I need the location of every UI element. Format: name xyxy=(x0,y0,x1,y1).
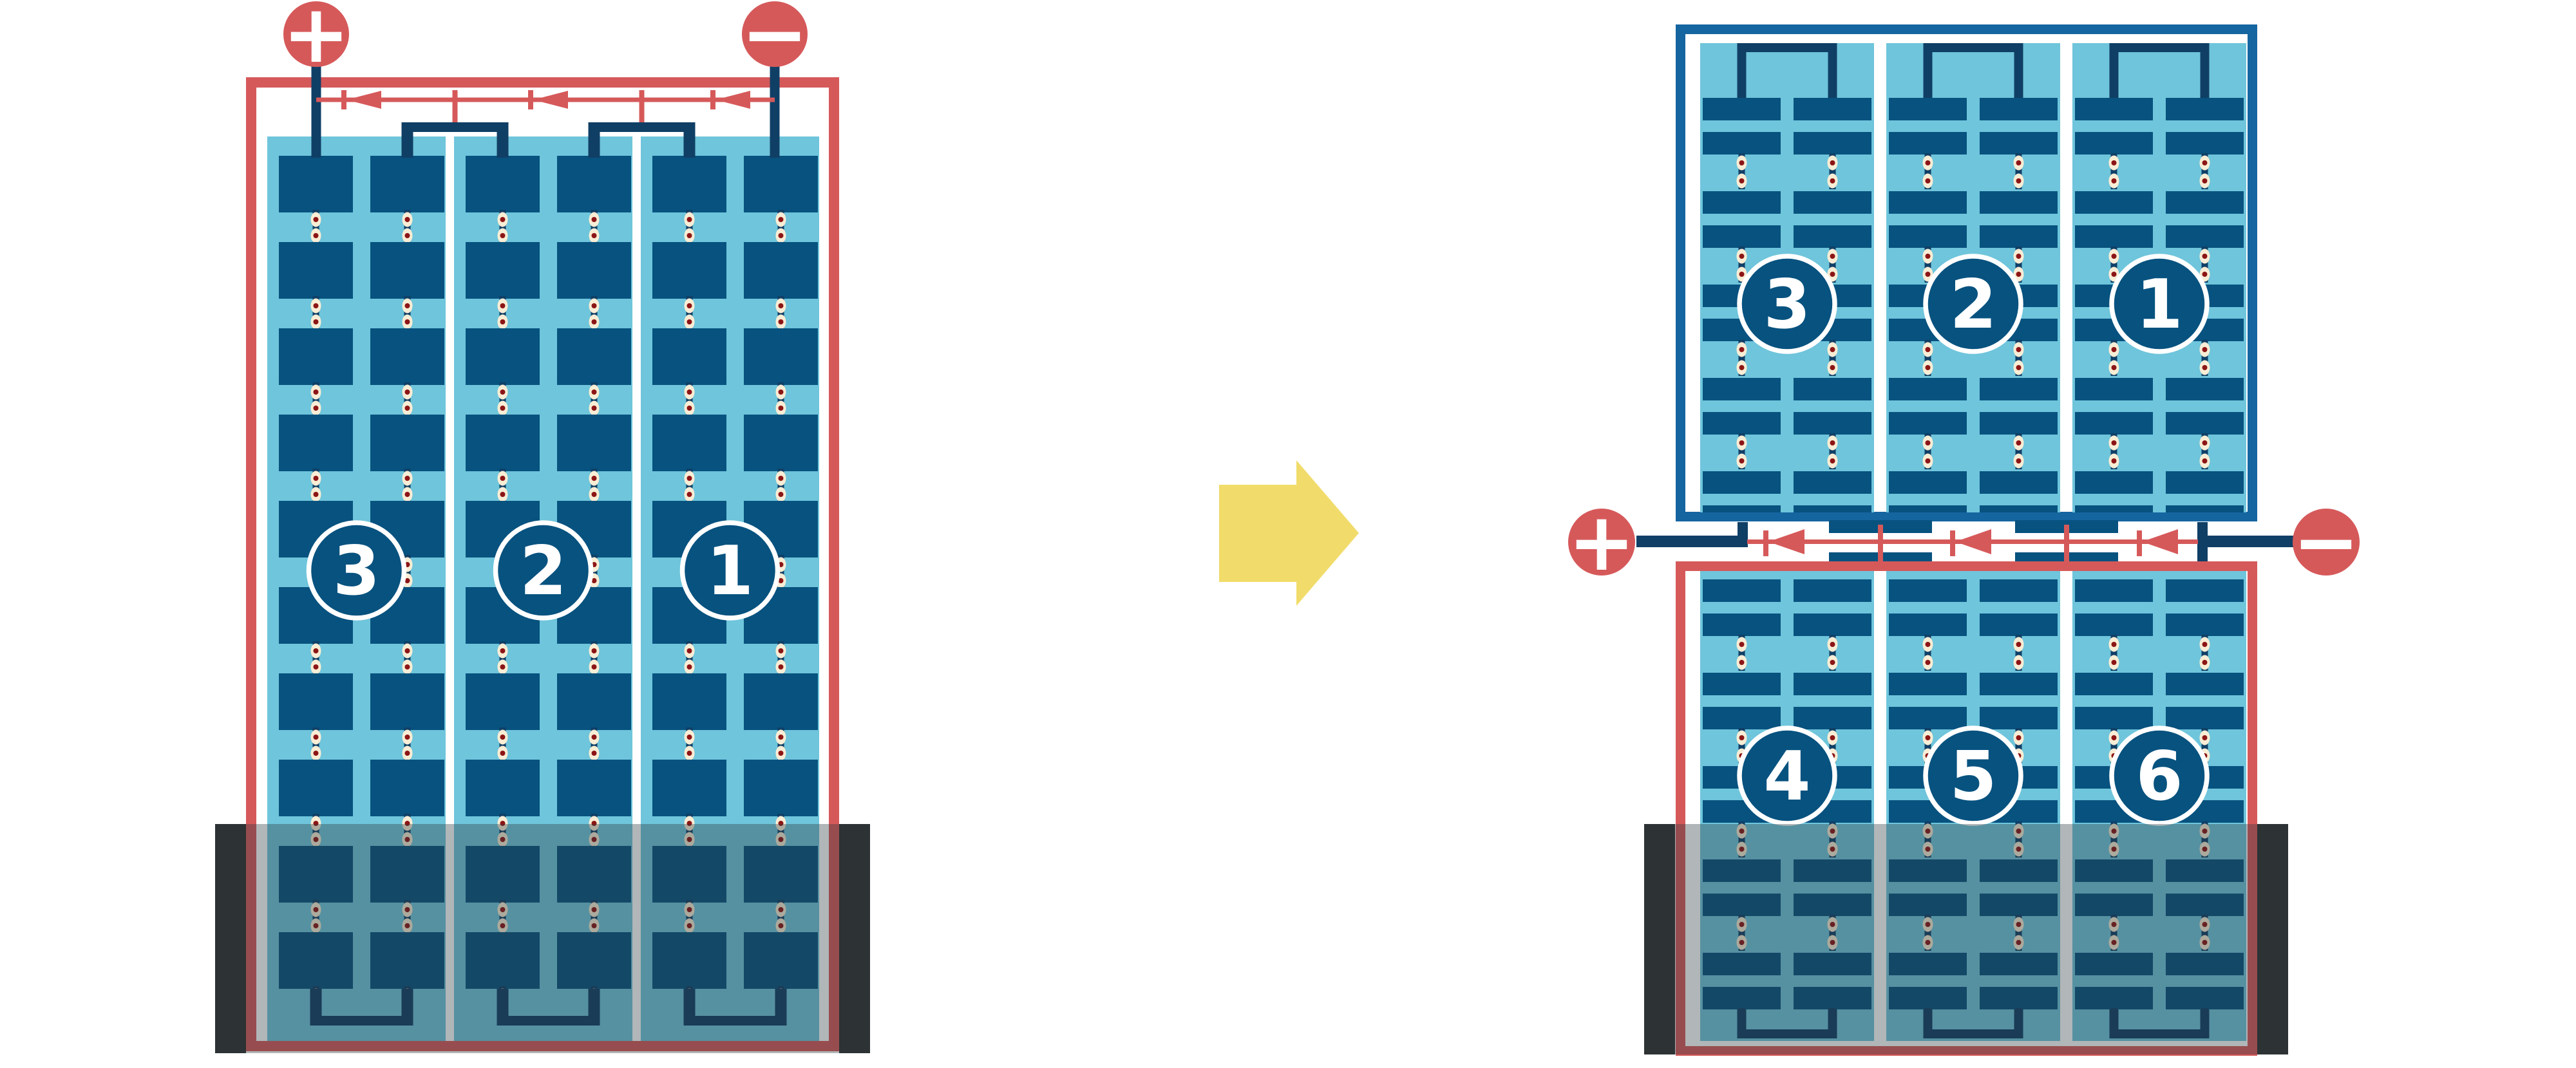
bypass-diode-icon xyxy=(528,90,568,109)
right-arrow-icon xyxy=(1219,460,1359,606)
left-panel: 3 2 1 + − xyxy=(215,0,870,1053)
string-label-badge: 1 xyxy=(683,523,778,618)
positive-terminal-icon: + xyxy=(1568,496,1636,589)
negative-terminal-icon: − xyxy=(741,0,809,81)
positive-terminal-icon: + xyxy=(283,0,350,81)
bypass-diode-bus xyxy=(316,90,775,122)
string-label-badge: 2 xyxy=(1926,256,2021,351)
positive-terminal-label: + xyxy=(1568,496,1636,589)
negative-terminal-label: − xyxy=(741,0,809,81)
string-label: 1 xyxy=(2136,265,2183,344)
string-label: 1 xyxy=(706,532,753,610)
bus-tap xyxy=(453,90,458,122)
bus-tap xyxy=(639,90,645,122)
right-structure: 3 2 1 xyxy=(1568,30,2360,1055)
string-label-badge: 5 xyxy=(1926,728,2021,823)
string-label-badge: 2 xyxy=(496,523,591,618)
negative-terminal-label: − xyxy=(2293,496,2360,589)
shade-region xyxy=(1644,824,2288,1054)
right-bottom-panel: 4 5 6 xyxy=(1644,567,2288,1055)
string-label-badge: 3 xyxy=(309,523,404,618)
string-label: 3 xyxy=(1763,265,1810,344)
shade-overlay xyxy=(1644,824,2288,1054)
string-label: 4 xyxy=(1763,737,1810,816)
negative-terminal-icon: − xyxy=(2293,496,2360,589)
shade-region xyxy=(215,824,870,1053)
positive-terminal-label: + xyxy=(283,0,350,81)
shade-overlay xyxy=(215,824,870,1053)
string-label: 2 xyxy=(520,532,567,610)
right-top-panel: 3 2 1 xyxy=(1681,30,2253,517)
bypass-diode-icon xyxy=(710,90,750,109)
string-label: 3 xyxy=(333,532,380,610)
bypass-diode-icon xyxy=(341,90,381,109)
string-label: 2 xyxy=(1949,265,1996,344)
string-label-badge: 6 xyxy=(2112,728,2207,823)
string-label: 6 xyxy=(2136,737,2183,816)
string-label-badge: 4 xyxy=(1739,728,1835,823)
diagram-canvas: 3 2 1 + − xyxy=(0,0,2576,1068)
bus-tap xyxy=(1878,525,1883,561)
bypass-diode-bus xyxy=(1747,525,2198,561)
string-label-badge: 1 xyxy=(2112,256,2207,351)
string-label: 5 xyxy=(1949,737,1996,816)
positive-lead-wire xyxy=(1636,522,1748,547)
bus-tap xyxy=(2064,525,2069,561)
string-label-badge: 3 xyxy=(1739,256,1835,351)
solar-panel-wiring-diagram: 3 2 1 + − xyxy=(0,0,2576,1068)
negative-lead-wire xyxy=(2197,522,2296,561)
